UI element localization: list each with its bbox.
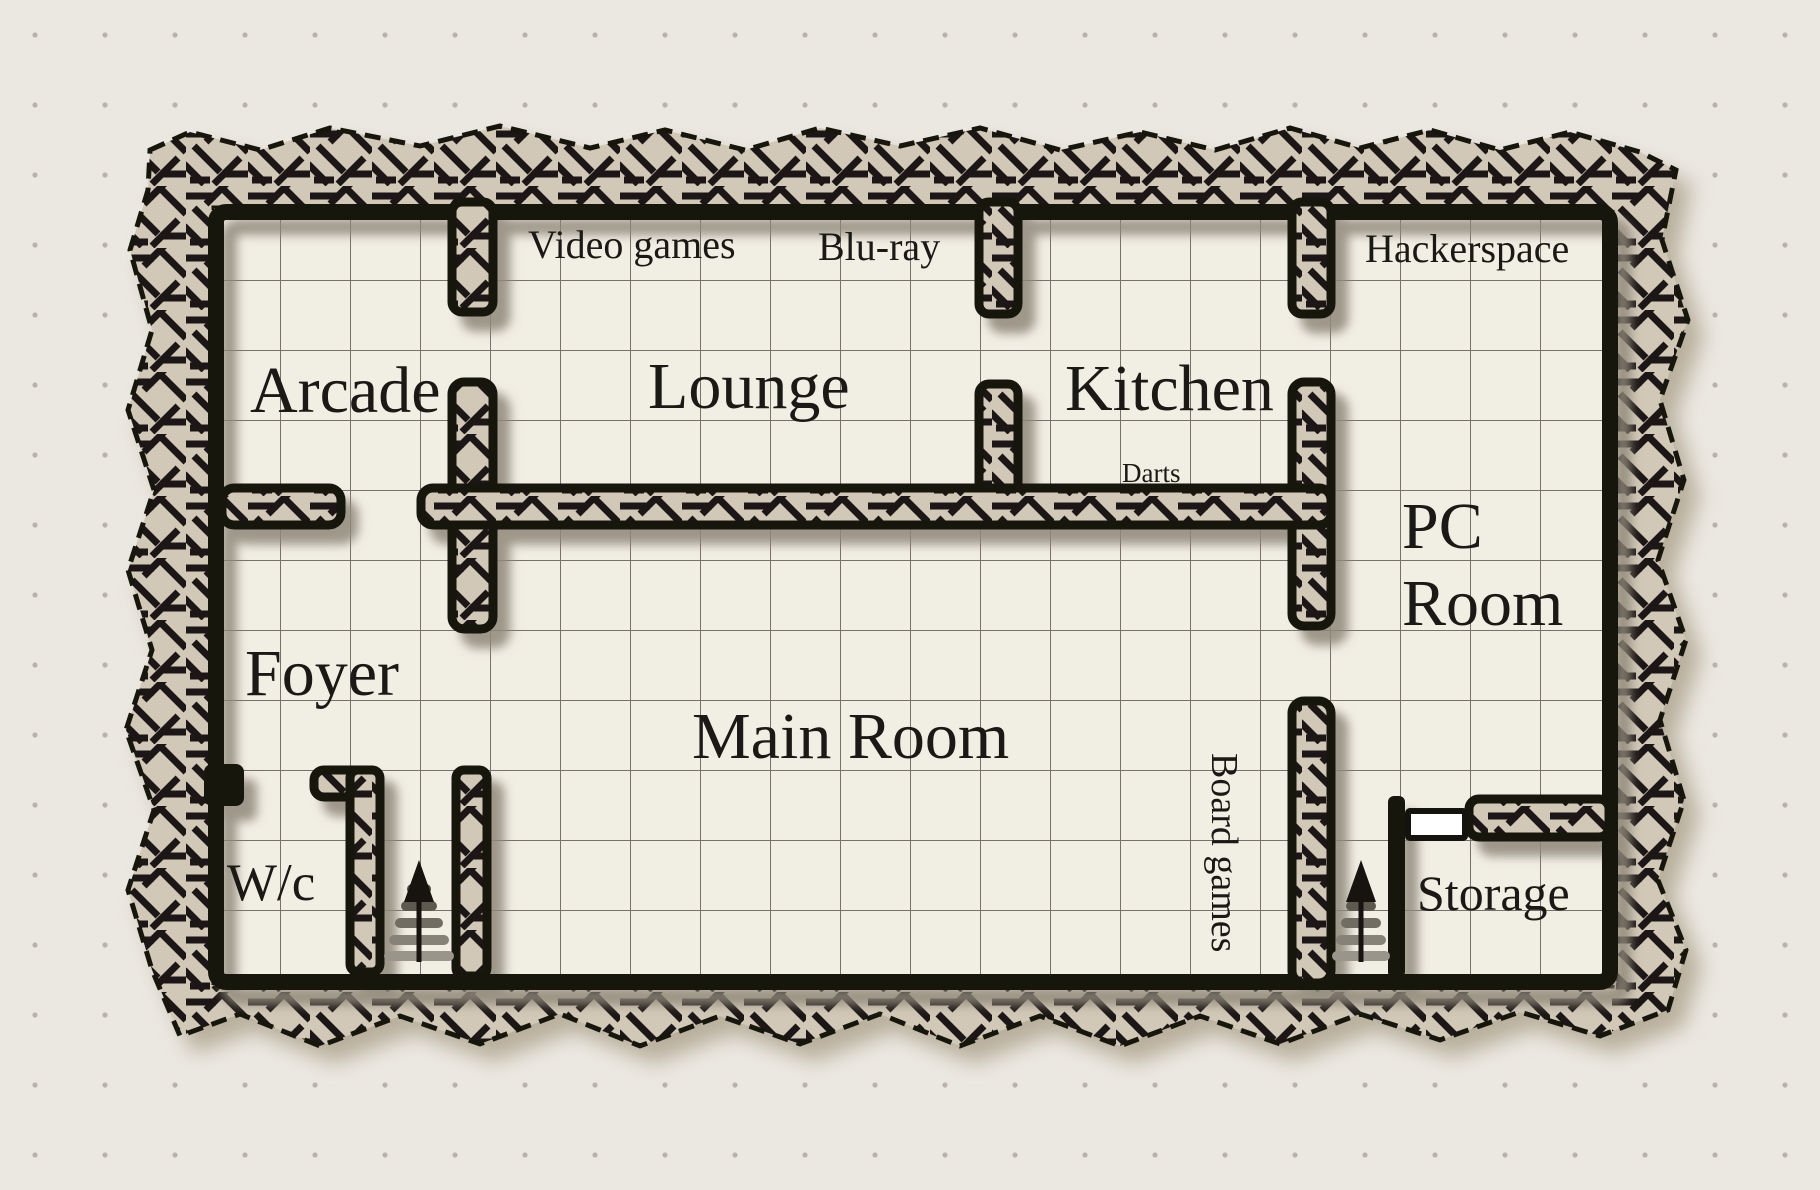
floorplan-svg: Arcade Lounge Kitchen Hackerspace PC Roo… bbox=[0, 0, 1820, 1190]
wall-storage-north bbox=[1469, 799, 1609, 837]
annotation-blu-ray: Blu-ray bbox=[818, 224, 940, 269]
wall-lounge-kitchen-mainroom bbox=[421, 488, 1331, 525]
room-label-pc-room: Room bbox=[1402, 567, 1563, 640]
room-label-foyer: Foyer bbox=[245, 637, 399, 710]
wall-storage-west bbox=[1388, 796, 1405, 978]
wall-wc-east bbox=[350, 770, 380, 972]
wall-kitchen-hackerspace bbox=[1292, 202, 1331, 314]
annotation-darts: Darts bbox=[1122, 458, 1180, 488]
room-label-storage: Storage bbox=[1417, 865, 1570, 921]
room-label-wc: W/c bbox=[227, 854, 315, 912]
wall-wc-door-jamb bbox=[204, 764, 244, 806]
wall-lounge-kitchen-north bbox=[979, 202, 1018, 314]
floorplan-canvas: Arcade Lounge Kitchen Hackerspace PC Roo… bbox=[0, 0, 1820, 1190]
room-label-arcade: Arcade bbox=[250, 354, 441, 427]
room-label-main-room: Main Room bbox=[692, 700, 1009, 773]
wall-arcade-foyer bbox=[222, 488, 341, 525]
door-icon bbox=[1408, 811, 1465, 838]
annotation-video-games: Video games bbox=[528, 222, 736, 267]
room-label-kitchen: Kitchen bbox=[1065, 352, 1274, 425]
wall-lounge-kitchen-south bbox=[979, 384, 1018, 496]
annotation-board-games: Board games bbox=[1203, 753, 1245, 952]
wall-arcade-lounge-north bbox=[452, 202, 493, 312]
room-label-pc: PC bbox=[1402, 490, 1483, 563]
wall-mainroom-pcroom-boardgames bbox=[1292, 701, 1331, 983]
room-label-lounge: Lounge bbox=[648, 350, 850, 423]
room-label-hackerspace: Hackerspace bbox=[1365, 226, 1569, 271]
wall-stairnook-west bbox=[456, 770, 487, 976]
